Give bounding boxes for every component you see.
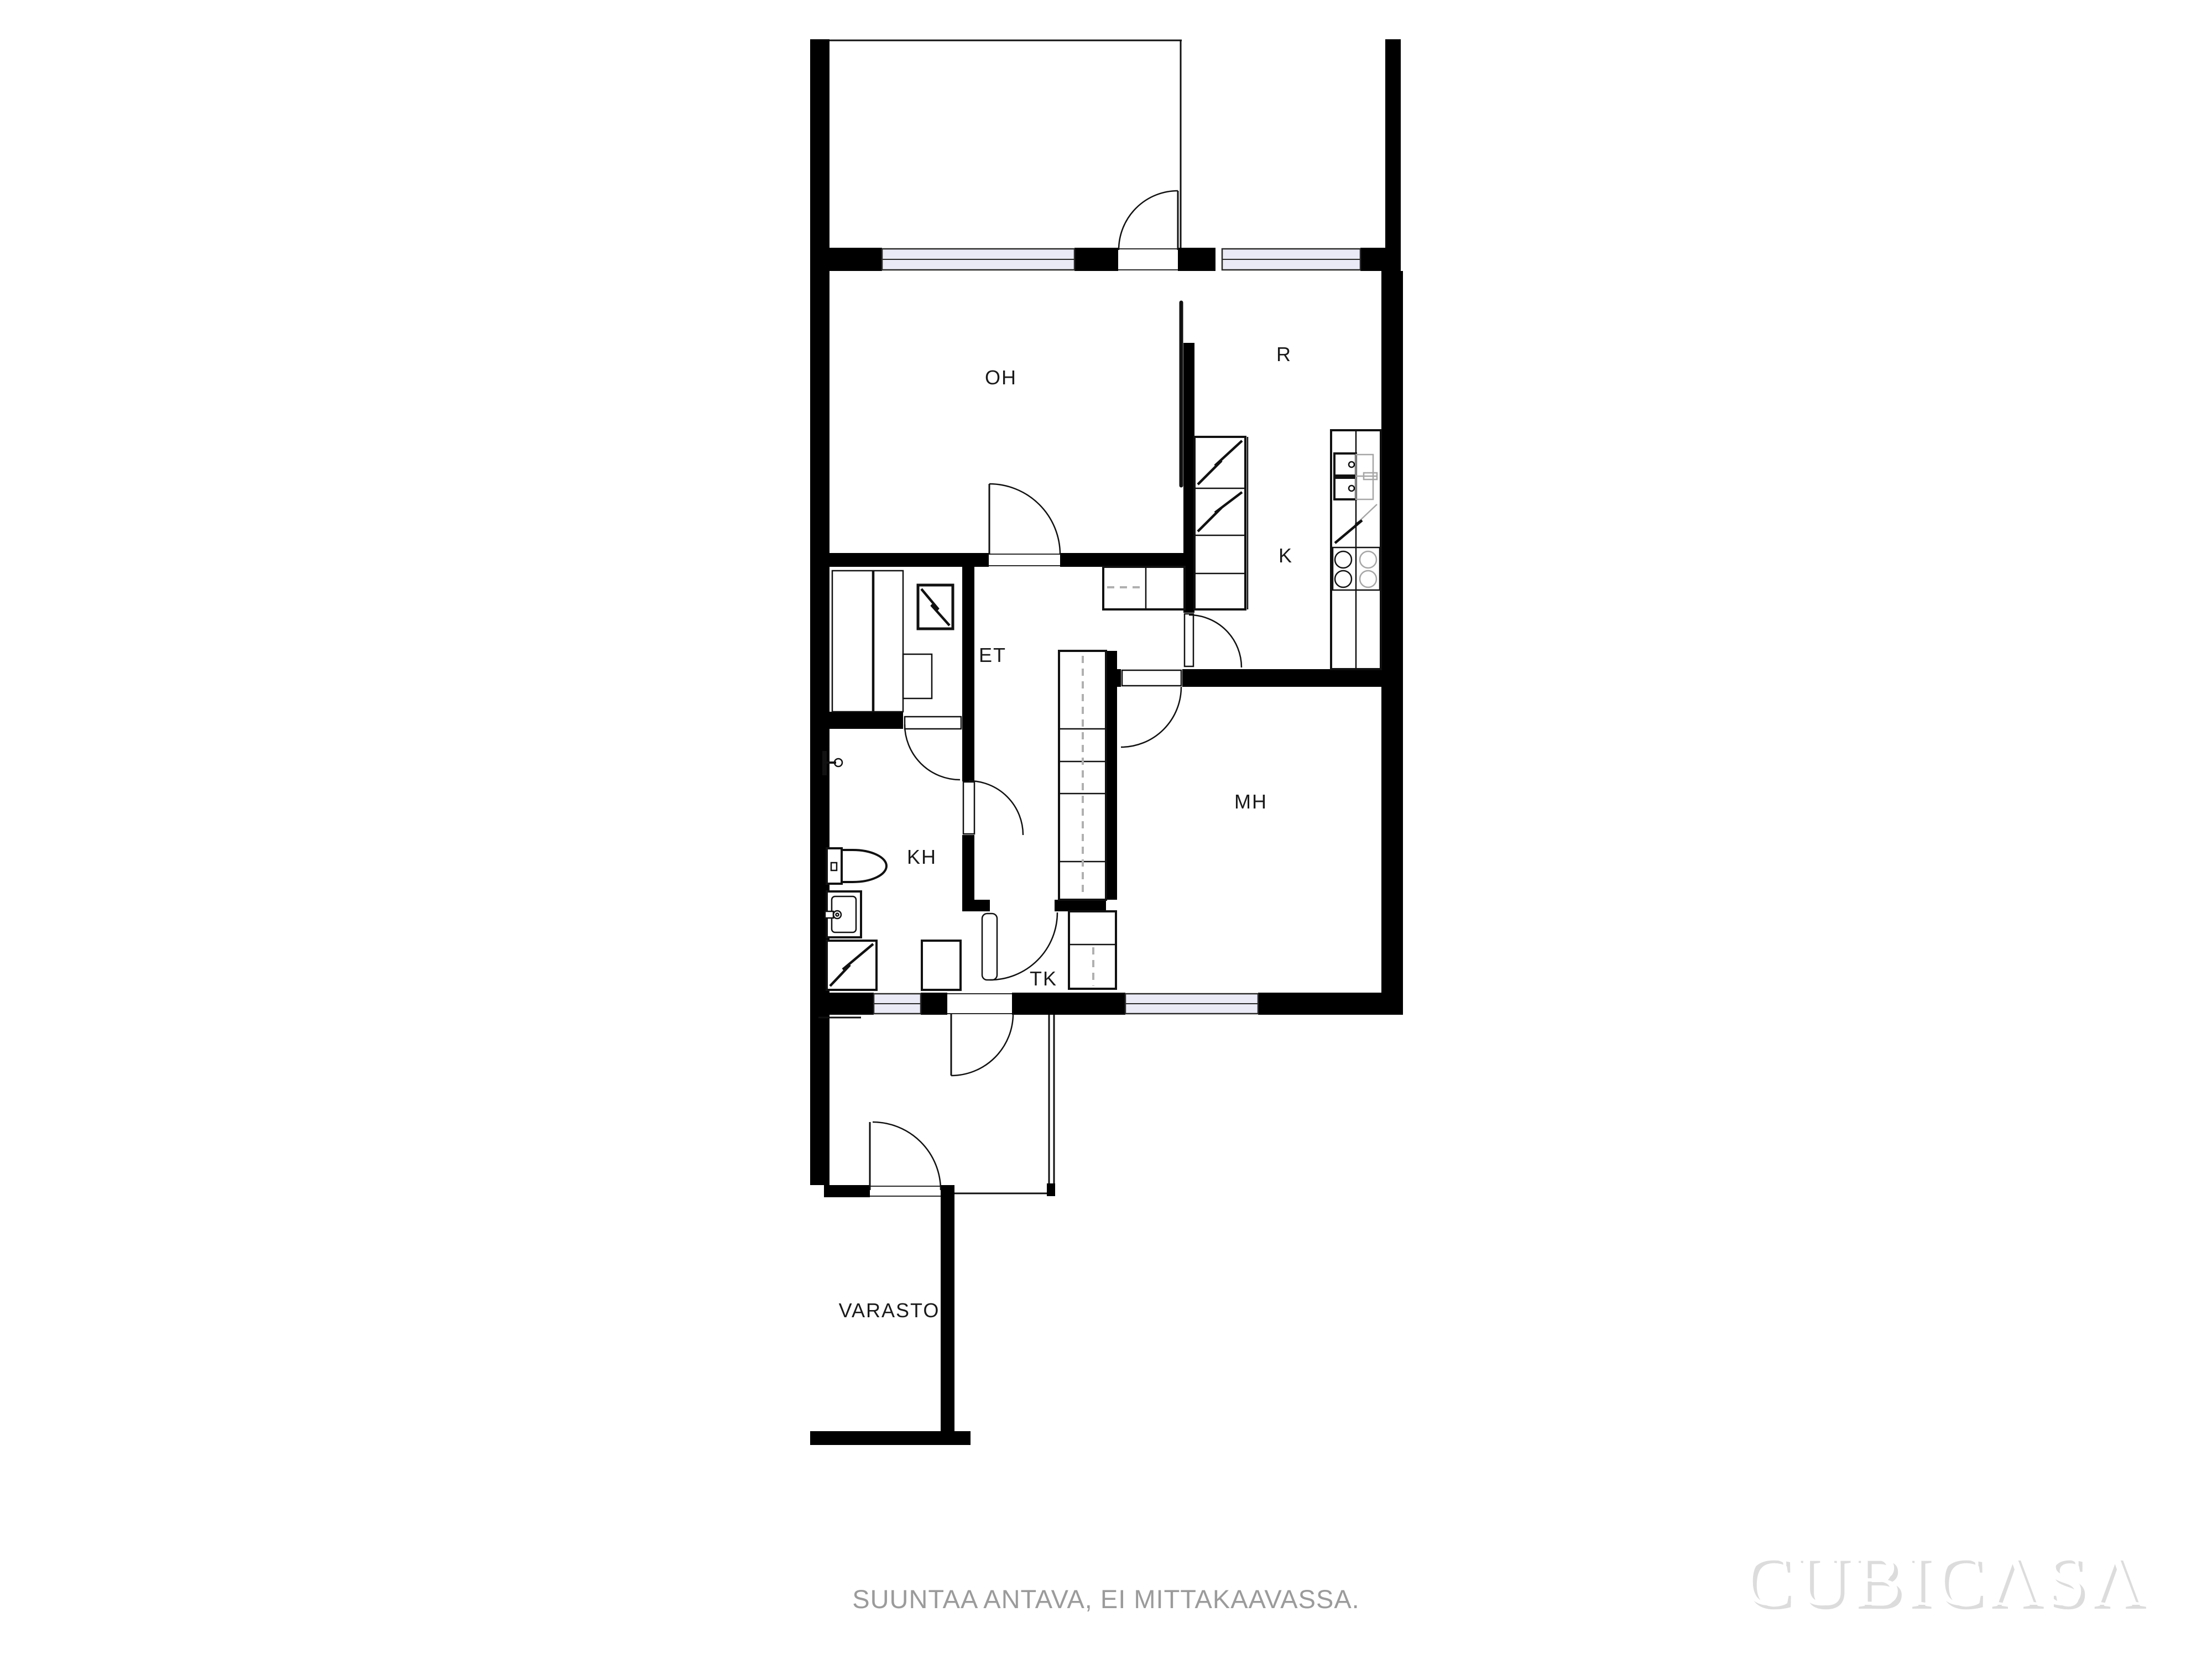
sink-basin xyxy=(1334,478,1356,499)
room-label-r: R xyxy=(1276,343,1292,366)
washing-machine-icon xyxy=(827,941,877,990)
window-dining xyxy=(1222,249,1360,270)
sink-basin xyxy=(1334,453,1356,476)
room-label-kh: KH xyxy=(907,846,937,868)
closets xyxy=(1059,567,1185,989)
doors xyxy=(870,191,1241,1196)
bathroom-fixtures xyxy=(822,751,961,990)
room-label-mh: MH xyxy=(1234,790,1267,813)
toilet-icon xyxy=(827,848,886,884)
sauna-bench-step xyxy=(903,654,932,698)
bathroom-door xyxy=(963,781,1023,835)
floorplan-page: OH R K ET KH MH TK VARASTO SUUNTAA ANTAV… xyxy=(0,0,2212,1659)
sauna-bench xyxy=(832,571,873,712)
fridge-freezer-unit xyxy=(1194,437,1248,609)
disclaimer-text: SUUNTAA ANTAVA, EI MITTAKAAVASSA. xyxy=(852,1584,1360,1614)
window-bedroom xyxy=(1125,994,1258,1014)
front-door xyxy=(947,994,1013,1076)
vestibule-closet xyxy=(1069,911,1116,989)
sauna-heater-icon xyxy=(918,585,953,629)
sauna-door xyxy=(905,717,961,780)
bedroom-door xyxy=(1121,670,1181,747)
hall-wardrobe xyxy=(1059,651,1106,900)
sauna xyxy=(832,571,953,712)
room-label-k: K xyxy=(1279,544,1293,567)
floorplan-drawing: OH R K ET KH MH TK VARASTO SUUNTAA ANTAV… xyxy=(0,0,2212,1659)
window-bathroom xyxy=(874,994,921,1014)
room-label-tk: TK xyxy=(1030,967,1057,990)
sink-counter-unit xyxy=(1331,430,1381,669)
sink-icon xyxy=(825,891,861,937)
kitchen-door xyxy=(1185,614,1241,667)
room-label-oh: OH xyxy=(985,366,1017,389)
room-label-varasto: VARASTO xyxy=(839,1299,940,1322)
cubicasa-watermark: CUBICΛSΛ CUBICΛSΛ xyxy=(1743,1540,2151,1625)
window-living-room xyxy=(882,249,1074,270)
storage-door xyxy=(870,1122,941,1196)
water-heater xyxy=(922,941,961,990)
balcony-door xyxy=(1118,191,1178,270)
living-room-door xyxy=(989,484,1060,566)
room-label-et: ET xyxy=(979,644,1006,666)
hall-cabinet xyxy=(1103,567,1185,609)
sauna-bench xyxy=(874,571,903,712)
shower-mixer-icon xyxy=(822,751,842,775)
watermark-text: CUBICΛSΛ xyxy=(1743,1540,2147,1621)
